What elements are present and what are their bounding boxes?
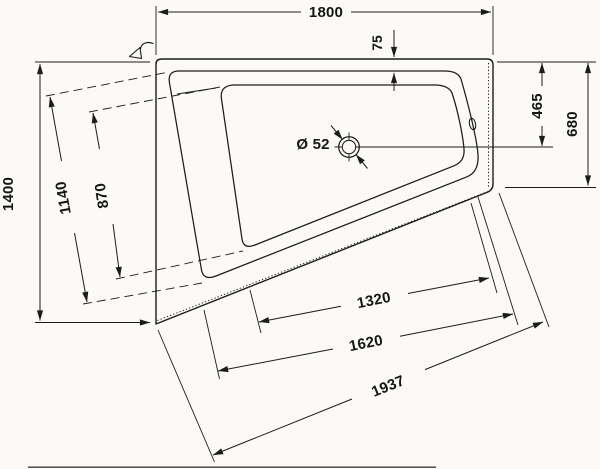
ext-line-dashed xyxy=(83,283,202,304)
dim-line xyxy=(213,399,352,455)
ext-line xyxy=(478,197,518,325)
dim-label-basin-left: 870 xyxy=(92,182,113,210)
ext-line-dashed xyxy=(46,72,169,96)
dim-label-drain-from-top: 465 xyxy=(529,93,546,119)
dim-line xyxy=(400,314,513,336)
dimension-inner-rim-bottom: 1620 xyxy=(204,197,518,379)
tub-dotted-edge-bottom xyxy=(158,192,489,321)
drain-crosshair xyxy=(335,133,364,162)
drain-leader-2 xyxy=(356,155,368,169)
dimension-overall-depth: 1400 xyxy=(0,62,150,323)
dim-label-right-depth: 680 xyxy=(564,111,581,137)
ext-line xyxy=(250,290,261,333)
dimension-right-depth: 680 xyxy=(505,63,596,188)
dimension-overall-width: 1800 xyxy=(156,4,493,55)
drawing-page: Ø 52 1800 75 465 680 1400 1140 xyxy=(0,0,600,469)
drain-leader-1 xyxy=(331,126,343,140)
corner-crease-line xyxy=(177,88,216,94)
dim-label-inner-rim-bottom: 1620 xyxy=(348,332,385,355)
drain: Ø 52 xyxy=(296,126,553,169)
rotate-arrow-icon xyxy=(130,43,154,59)
dim-line xyxy=(408,278,489,294)
ext-line xyxy=(158,330,215,462)
tub-basin-edge xyxy=(221,85,464,246)
dim-label-basin-bottom: 1320 xyxy=(356,289,393,312)
dimension-basin-left: 870 xyxy=(89,87,243,279)
dim-line xyxy=(93,113,100,149)
dimension-inner-rim-left: 1140 xyxy=(46,72,202,304)
dim-line xyxy=(113,224,120,277)
ext-line xyxy=(204,310,220,379)
dim-line xyxy=(259,306,341,322)
dim-line xyxy=(75,233,88,302)
dimension-outer-bottom: 1937 xyxy=(158,193,549,462)
dim-label-overall-depth: 1400 xyxy=(0,177,17,211)
dim-label-drain-diameter: Ø 52 xyxy=(296,136,329,153)
dimension-rim-offset: 75 xyxy=(369,30,394,91)
scan-edge xyxy=(28,466,436,468)
dim-label-outer-bottom: 1937 xyxy=(369,372,407,401)
ext-line-dashed xyxy=(116,251,243,279)
ext-line xyxy=(499,193,549,327)
dim-label-rim-offset: 75 xyxy=(369,35,385,51)
technical-drawing: Ø 52 1800 75 465 680 1400 1140 xyxy=(0,0,600,469)
dim-line xyxy=(425,322,543,370)
drain-inner-circle xyxy=(342,140,355,153)
dim-label-inner-rim-left: 1140 xyxy=(52,180,75,216)
dim-line xyxy=(218,349,333,371)
tub-outline xyxy=(156,59,493,324)
dimension-drain-from-top: 465 xyxy=(497,62,596,146)
dimension-basin-bottom: 1320 xyxy=(250,203,497,333)
dim-line xyxy=(50,97,62,161)
tub-outer-edge xyxy=(156,59,493,324)
dim-label-overall-width: 1800 xyxy=(309,4,343,21)
ext-line-dashed xyxy=(89,87,220,112)
